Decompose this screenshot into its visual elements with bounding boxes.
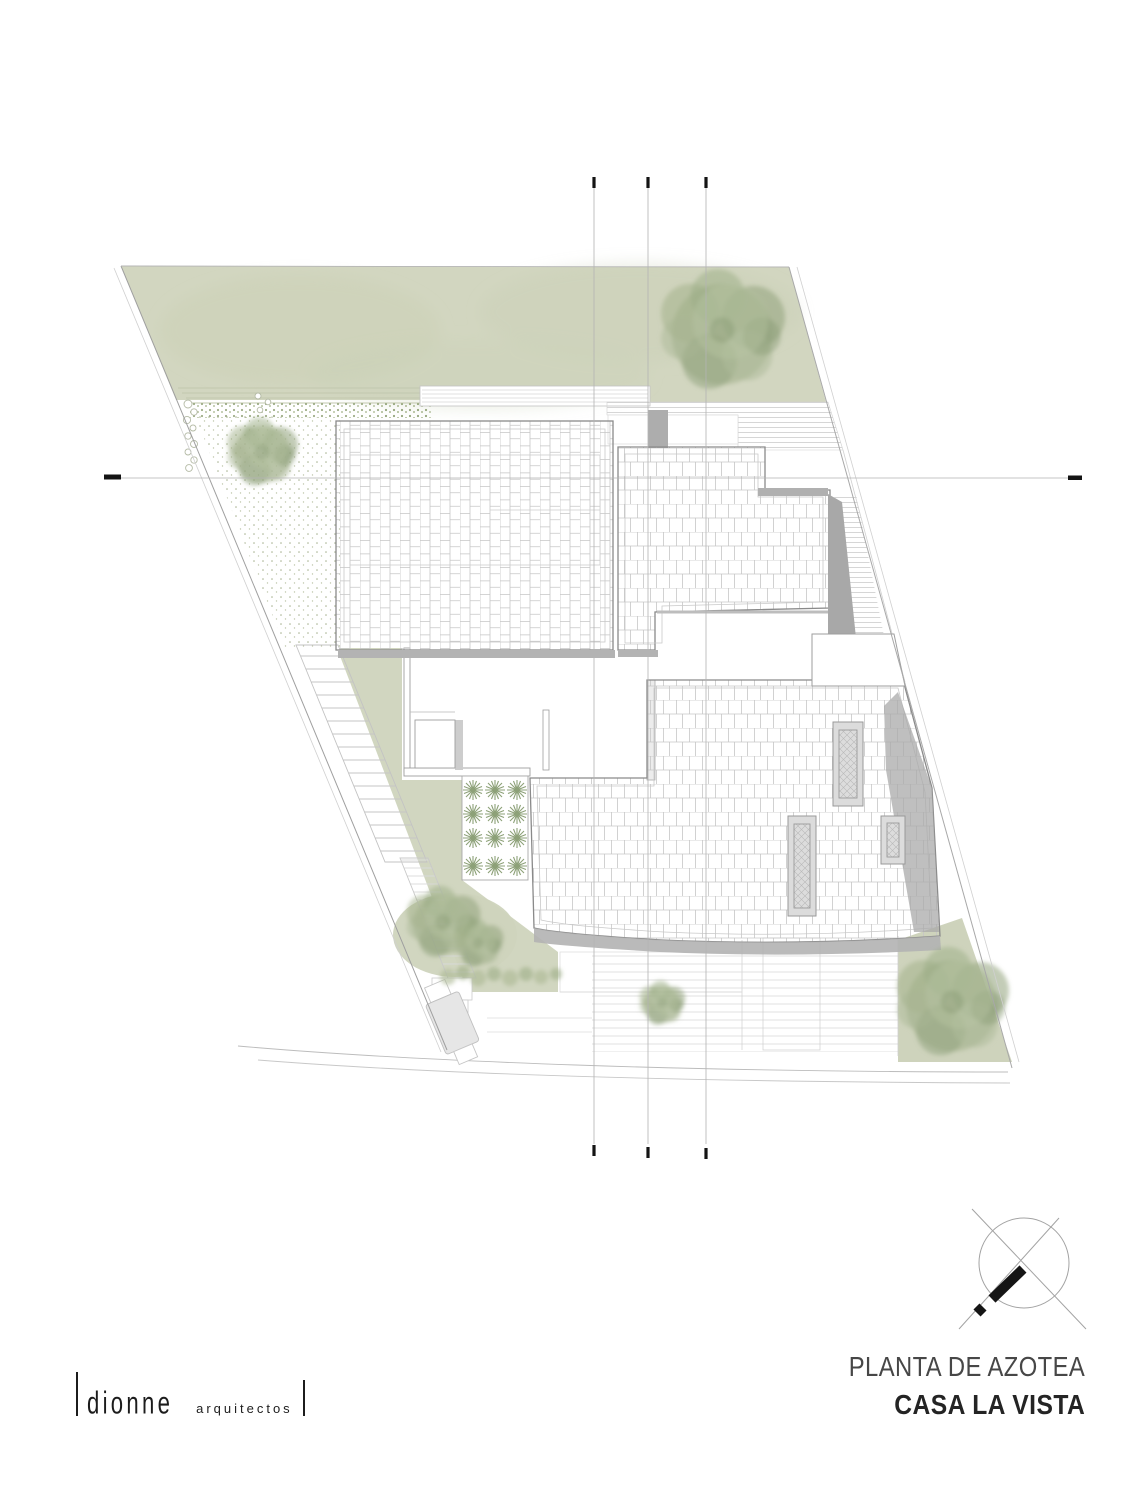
roof-parapet-cap: [812, 634, 905, 686]
drawing-sheet: dionne arquitectos PLANTA DE AZOTEA CASA…: [0, 0, 1144, 1500]
axis-tick: [1068, 476, 1082, 481]
logo-left-bar: [76, 1372, 78, 1416]
sheet-title: PLANTA DE AZOTEA: [849, 1348, 1085, 1386]
deck-hatch-north: [607, 402, 843, 450]
logo-descriptor: arquitectos: [196, 1402, 293, 1416]
axis-tick: [704, 1148, 707, 1159]
north-needle-dot: [977, 1307, 983, 1313]
skylight-1: [833, 722, 863, 806]
roof-terrace: [402, 648, 655, 780]
vegetation-band: [190, 402, 432, 418]
logo-brand: dionne: [87, 1390, 173, 1416]
axis-tick: [592, 1145, 595, 1156]
axis-tick: [646, 1147, 649, 1158]
upper-east-tiled-roof: [618, 447, 856, 657]
axis-tick: [704, 177, 707, 188]
axis-tick: [104, 475, 121, 480]
title-block: PLANTA DE AZOTEA CASA LA VISTA: [807, 1348, 1085, 1424]
roof-plan-drawing: [0, 0, 1144, 1500]
project-name: CASA LA VISTA: [840, 1386, 1085, 1424]
axis-tick: [646, 177, 649, 188]
axis-tick: [592, 177, 595, 188]
north-arrow: [959, 1209, 1086, 1329]
firm-logo: dionne arquitectos: [76, 1368, 305, 1416]
agave-planter: [462, 776, 528, 880]
skylight-2: [788, 816, 816, 916]
skylight-3: [881, 816, 905, 864]
north-needle: [992, 1269, 1023, 1299]
logo-right-bar: [303, 1380, 305, 1416]
